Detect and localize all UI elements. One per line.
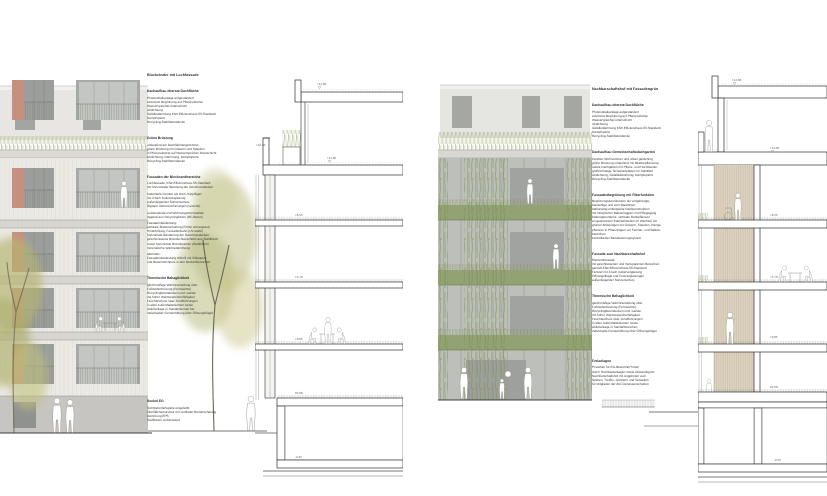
annotation-section: FreianlagenPrivatheit für EG-Bewohner*in… (592, 359, 708, 386)
penthouse-walls (301, 102, 308, 165)
basement (698, 402, 827, 472)
penthouse-wall (718, 98, 727, 152)
annotation-section: Sockel EGSichtbetonfertigteile eingefärb… (147, 399, 263, 422)
level-label: +14.80 (732, 78, 742, 82)
ground-slab (698, 389, 827, 402)
elevation-right (438, 80, 592, 405)
level-label: ±0.00 (295, 391, 303, 395)
annotation-section: Fassadenbegrünung mit FilterfunktionBegr… (592, 193, 708, 240)
annotation-line: kontrolliertes Bewässerungssystem (592, 236, 708, 240)
level-label: ±0.00 (770, 385, 778, 389)
annotations-right: Nachbarschaftshof mit FassadengrünDachau… (592, 87, 708, 386)
section-heading: Fassadenbegrünung mit Filterfunktion (592, 193, 708, 197)
annotation-line: individueller Fensterlüftung über Öffnun… (147, 311, 263, 315)
level-label: +11.50 (770, 146, 779, 150)
level-label: +14.80 (317, 82, 327, 86)
green-facade-structure (699, 165, 760, 392)
annotation-section: Fassade zum NachbarschaftshofElementfass… (592, 252, 708, 283)
section-heading: Grüne Brüstung (147, 136, 263, 140)
annotation-section: Fassaden der BlockrandbereicheLochfassad… (147, 175, 263, 265)
section-heading: Freianlagen (592, 359, 708, 363)
level-label: -2.45 (295, 455, 302, 459)
basement (255, 406, 403, 468)
section-heading: Thermische Behaglichkeit (592, 294, 708, 298)
level-label: +8.55 (770, 213, 778, 217)
annotation-section: Thermische Behaglichkeitgleichmäßige Wär… (592, 294, 708, 333)
interior-dining-scene (309, 317, 345, 343)
annotation-section: Dachaufbau oberste DachflächePhotovoltai… (147, 89, 263, 124)
annotation-line: Recycling-Stahlbetondecke (147, 120, 263, 124)
annotation-line: Recycling-Stahlbetondecke (592, 134, 708, 138)
elevation-left (0, 80, 152, 436)
annotations-left: Blockränder mit LochfassadeDachaufbau ob… (147, 73, 263, 422)
annotation-line: Stahlbeton-Außenwand (147, 418, 263, 422)
ground-hatch (602, 400, 655, 407)
annotation-line: für Mitglieder der drei Genossenschaften (592, 382, 708, 386)
section-heading: Thermische Behaglichkeit (147, 276, 263, 280)
level-label: +2.85 (295, 337, 303, 341)
courtyard-ground (592, 395, 700, 437)
annotation-line: Recycling-Stahlbetondecke (592, 177, 708, 181)
section-heading: Fassade zum Nachbarschaftshof (592, 252, 708, 256)
annotation-line: Recycling-Stahlbetondecke (147, 159, 263, 163)
level-label: +5.70 (770, 275, 778, 279)
annotation-line: außenliegender Sonnenschutz (592, 278, 708, 282)
roof-parapet-greening (438, 132, 592, 158)
section-heading: Sockel EG (147, 399, 263, 403)
section-heading: Dachaufbau Gemeinschaftsdachgarten (592, 150, 708, 154)
annotation-line: und Besenstrichputz in den Deckenbereich… (147, 260, 263, 264)
level-label: +2.85 (770, 335, 778, 339)
column-title: Nachbarschaftshof mit Fassadengrün (592, 87, 708, 91)
facade-floor-module (12, 80, 140, 120)
annotation-section: Grüne Brüstungumlaufend am Dachflächenge… (147, 136, 263, 163)
section-heading: Dachaufbau oberste Dachfläche (147, 89, 263, 93)
column-title: Blockränder mit Lochfassade (147, 73, 263, 77)
annotation-section: Thermische Behaglichkeitgleichmäßige Wär… (147, 276, 263, 315)
annotation-section: Dachaufbau oberste DachflächePhotovoltai… (592, 103, 708, 138)
section-right: +14.80 +11.50 +8.55 (698, 70, 827, 490)
annotation-line: individuelle Fensterlüftung über Öffnung… (592, 329, 708, 333)
roof-garden-terrace (698, 120, 827, 165)
section-heading: Fassaden der Blockrandbereiche (147, 175, 263, 179)
annotation-section: Dachaufbau GemeinschaftsdachgartenOutdoo… (592, 150, 708, 181)
ground-slab (277, 395, 403, 406)
presentation-board: Blockränder mit LochfassadeDachaufbau ob… (0, 0, 827, 496)
roof (712, 76, 827, 98)
roof-parapet-greening (0, 136, 148, 158)
penthouse (440, 85, 590, 138)
section-heading: Dachaufbau oberste Dachfläche (592, 103, 708, 107)
section-left: +14.80 +12.20 +11.50 +8.55 (255, 70, 403, 490)
level-label: +5.70 (295, 275, 303, 279)
terrace-green-parapet (263, 130, 301, 165)
level-label: -2.45 (774, 458, 781, 462)
terrace-slab (263, 162, 403, 175)
level-label: +8.55 (295, 213, 303, 217)
level-marker (318, 87, 321, 89)
level-label: +11.50 (327, 156, 336, 160)
roof (295, 80, 403, 102)
